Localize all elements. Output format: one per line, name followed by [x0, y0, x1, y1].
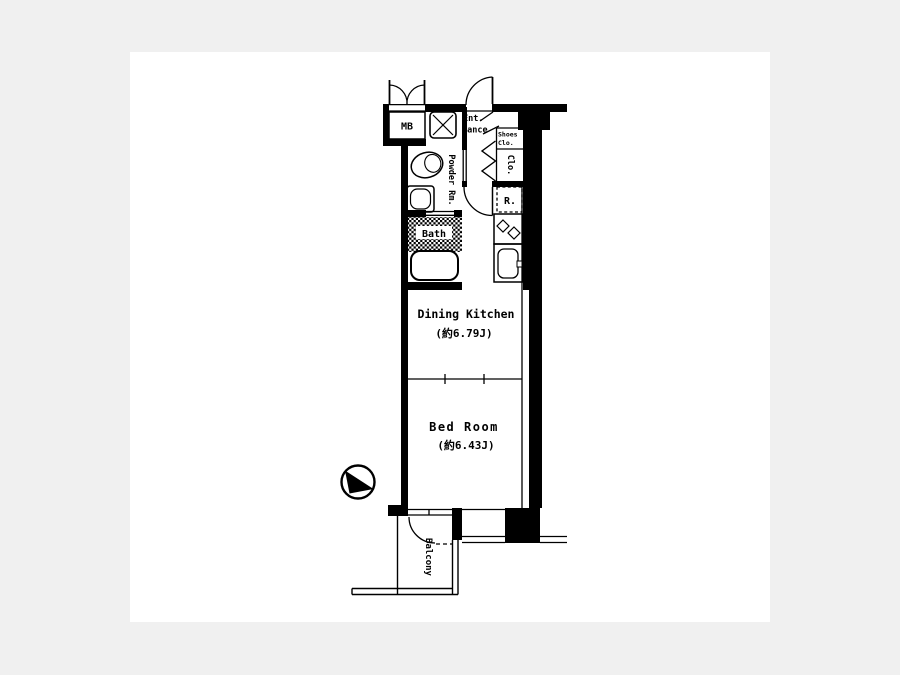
floor-plan: MB Ent. rance Shoes Clo. Clo. R. Powder … [0, 0, 900, 675]
label-entrance-line1: Ent. [463, 114, 483, 124]
wall-powder-bath-right [454, 210, 462, 217]
label-meter-box: MB [401, 122, 413, 133]
bathtub [411, 251, 458, 280]
label-refrigerator: R. [504, 196, 516, 207]
wall-right-upper [523, 130, 542, 290]
label-shoes-closet-line1: Shoes [498, 131, 518, 139]
wall-pillar-bottom-right [505, 508, 540, 543]
label-bed-room-size: (約6.43J) [437, 438, 494, 452]
label-balcony: Balcony [423, 538, 433, 577]
wall-right-pillar-top [518, 112, 550, 130]
wall-powder-bath-left [401, 210, 426, 217]
wall-top-middle [425, 104, 466, 112]
label-dining-kitchen: Dining Kitchen [418, 307, 515, 321]
wall-bath-dk [401, 282, 462, 290]
wall-top-right [492, 104, 567, 112]
label-entrance-line2: rance [462, 126, 488, 136]
wall-balcony-stub [452, 508, 462, 540]
label-shoes-closet-line2: Clo. [498, 139, 514, 147]
kitchen-tap [517, 261, 522, 267]
wall-mb-bottom [383, 139, 426, 146]
label-dining-kitchen-size: (約6.79J) [435, 326, 492, 340]
wall-right-lower [529, 290, 542, 508]
label-bath: Bath [422, 229, 446, 240]
label-powder-room: Powder Rm. [446, 154, 456, 205]
label-closet: Clo. [505, 155, 515, 175]
wall-bottom-left-corner [388, 505, 408, 516]
page-background: MB Ent. rance Shoes Clo. Clo. R. Powder … [0, 0, 900, 675]
label-bed-room: Bed Room [429, 420, 499, 434]
